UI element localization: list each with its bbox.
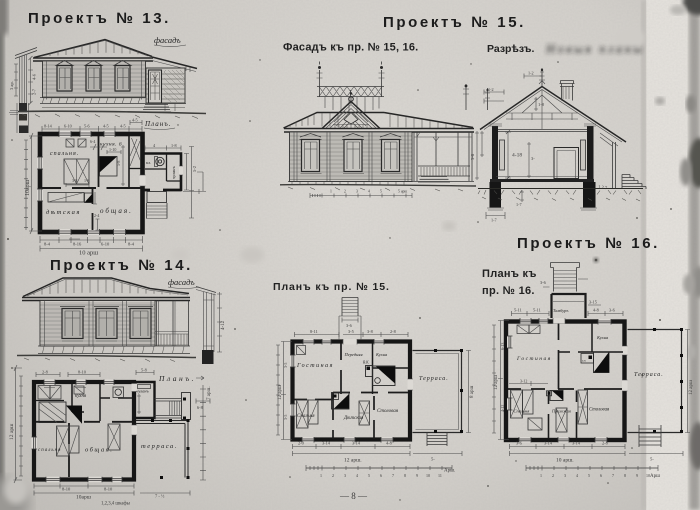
svg-text:Терраса.: Терраса. (634, 372, 664, 378)
svg-text:10арш: 10арш (76, 495, 92, 501)
svg-text:3: 3 (344, 473, 346, 478)
svg-text:7 арш.: 7 арш. (207, 386, 212, 400)
svg-text:5-2: 5-2 (192, 166, 197, 172)
svg-text:— 8 —: — 8 — (339, 491, 368, 501)
svg-text:8-10: 8-10 (104, 487, 113, 492)
svg-text:3: 3 (356, 190, 358, 194)
svg-text:3-14: 3-14 (572, 441, 581, 446)
svg-text:3-8: 3-8 (72, 178, 77, 183)
svg-text:3-5: 3-5 (283, 415, 288, 420)
svg-text:3-15: 3-15 (589, 300, 597, 305)
svg-text:12 арш: 12 арш (689, 380, 694, 395)
svg-text:4-18: 4-18 (512, 153, 522, 159)
svg-text:Разрѣзъ.: Разрѣзъ. (487, 43, 534, 55)
svg-text:1-2: 1-2 (488, 87, 494, 92)
svg-text:5-11: 5-11 (514, 308, 522, 313)
svg-text:8: 8 (404, 473, 406, 478)
svg-text:12 арш.: 12 арш. (344, 458, 362, 464)
svg-text:9: 9 (636, 473, 638, 478)
svg-text:8-4: 8-4 (128, 242, 135, 247)
svg-text:10 арш.: 10 арш. (556, 458, 574, 464)
svg-text:5-8: 5-8 (141, 368, 147, 373)
svg-text:8: 8 (624, 473, 626, 478)
svg-text:4-6: 4-6 (32, 73, 37, 80)
svg-text:3-14: 3-14 (544, 441, 553, 446)
svg-text:Дѣтская: Дѣтская (343, 416, 364, 421)
svg-text:12 арш: 12 арш (494, 375, 499, 390)
svg-text:4-5: 4-5 (120, 124, 126, 129)
svg-text:1-10: 1-10 (109, 147, 116, 152)
svg-text:Проектъ № 13.: Проектъ № 13. (28, 10, 171, 27)
svg-text:фасадъ: фасадъ (168, 277, 195, 287)
svg-text:5 арш: 5 арш (398, 190, 407, 194)
svg-text:Арш.: Арш. (444, 469, 455, 474)
svg-text:Тамбуръ: Тамбуръ (553, 308, 569, 313)
svg-text:8-11: 8-11 (310, 329, 318, 334)
svg-text:Планъ къ пр. № 15.: Планъ къ пр. № 15. (273, 281, 390, 293)
svg-text:Планъ.: Планъ. (144, 120, 172, 128)
svg-text:5-11: 5-11 (533, 308, 541, 313)
svg-text:6-4: 6-4 (90, 139, 95, 144)
svg-text:1-7: 1-7 (491, 218, 497, 223)
svg-text:Проектъ № 15.: Проектъ № 15. (383, 14, 526, 31)
svg-text:4: 4 (576, 473, 578, 478)
svg-text:1,2,3,4 шкафы: 1,2,3,4 шкафы (101, 502, 131, 507)
svg-text:3-14: 3-14 (322, 441, 331, 446)
svg-text:7: 7 (392, 473, 394, 478)
svg-text:Проектъ № 14.: Проектъ № 14. (50, 257, 193, 274)
svg-text:6-10: 6-10 (64, 124, 72, 129)
svg-text:6-13: 6-13 (500, 343, 505, 350)
svg-text:3-12: 3-12 (520, 379, 527, 384)
svg-text:2-8: 2-8 (602, 441, 608, 446)
svg-text:2-8: 2-8 (42, 370, 48, 375)
svg-text:9: 9 (416, 473, 418, 478)
svg-text:пр. № 16.: пр. № 16. (482, 285, 535, 297)
svg-text:спальня: спальня (38, 448, 61, 453)
svg-text:3-8: 3-8 (470, 153, 475, 160)
svg-text:2-8: 2-8 (390, 329, 396, 334)
svg-text:5-: 5- (650, 457, 654, 462)
svg-text:4-12: 4-12 (500, 405, 505, 412)
svg-text:Прихожая: Прихожая (551, 409, 571, 414)
svg-text:5-6: 5-6 (84, 124, 90, 129)
svg-text:2: 2 (332, 473, 334, 478)
svg-text:Спальня: Спальня (297, 414, 315, 419)
svg-text:Спальня: Спальня (514, 409, 530, 414)
svg-text:8 арш: 8 арш (470, 386, 475, 398)
svg-text:8-10: 8-10 (78, 370, 86, 375)
svg-text:3: 3 (564, 473, 566, 478)
svg-text:терраса.: терраса. (141, 443, 178, 450)
svg-text:общая.: общая. (85, 447, 113, 454)
svg-text:12 арш: 12 арш (278, 385, 283, 400)
svg-text:4-5: 4-5 (103, 124, 109, 129)
svg-text:Кухня: Кухня (596, 335, 608, 340)
svg-text:4-8: 4-8 (593, 308, 599, 313)
svg-text:7: 7 (612, 473, 614, 478)
svg-text:10арш: 10арш (25, 179, 31, 196)
svg-text:4: 4 (368, 190, 370, 194)
svg-text:1: 1 (320, 473, 322, 478)
svg-text:8-10: 8-10 (62, 487, 71, 492)
svg-text:12 арш: 12 арш (9, 423, 15, 440)
svg-text:5: 5 (588, 473, 590, 478)
svg-text:2-0: 2-0 (298, 441, 304, 446)
svg-text:2: 2 (552, 473, 554, 478)
svg-text:5: 5 (368, 473, 370, 478)
svg-text:кухня: кухня (75, 394, 87, 399)
svg-text:Столовая: Столовая (377, 409, 399, 414)
svg-text:10 арш: 10 арш (79, 250, 98, 257)
svg-text:3-5: 3-5 (348, 329, 354, 334)
svg-text:4-8: 4-8 (386, 441, 392, 446)
svg-text:1-8: 1-8 (538, 102, 545, 107)
svg-text:Гостиная: Гостиная (516, 356, 552, 362)
svg-text:2: 2 (344, 190, 346, 194)
svg-text:Терраса.: Терраса. (419, 376, 449, 382)
svg-text:спальня.: спальня. (50, 151, 79, 157)
svg-text:Проектъ № 16.: Проектъ № 16. (517, 235, 660, 252)
svg-text:Гостиная: Гостиная (296, 363, 334, 369)
svg-text:общая.: общая. (100, 207, 133, 215)
svg-text:1-8: 1-8 (171, 143, 177, 148)
svg-text:3-: 3- (531, 156, 535, 161)
svg-text:Столовая: Столовая (589, 408, 610, 413)
svg-text:фасадъ: фасадъ (154, 35, 181, 45)
svg-text:6-8: 6-8 (197, 405, 203, 410)
svg-text:11: 11 (438, 473, 442, 478)
svg-text:5-: 5- (431, 457, 435, 462)
svg-text:1-8: 1-8 (84, 178, 89, 183)
svg-text:4: 4 (356, 473, 358, 478)
svg-text:2-7: 2-7 (32, 88, 37, 95)
svg-text:4-5: 4-5 (132, 118, 138, 123)
svg-text:3 ар.: 3 ар. (9, 81, 14, 90)
svg-text:6-10: 6-10 (101, 242, 110, 247)
svg-text:Передняя: Передняя (344, 352, 363, 357)
svg-text:Новыя планы: Новыя планы (545, 42, 644, 56)
svg-text:чуланъ: чуланъ (137, 388, 150, 393)
svg-text:В.К.: В.К. (363, 361, 369, 365)
svg-text:Арш: Арш (650, 474, 660, 479)
svg-text:3-8: 3-8 (367, 329, 373, 334)
svg-text:5: 5 (380, 190, 382, 194)
svg-text:1: 1 (330, 190, 332, 194)
svg-text:чуланъ: чуланъ (171, 165, 176, 179)
svg-text:3-5: 3-5 (283, 363, 288, 368)
svg-text:дѣтская: дѣтская (46, 209, 81, 216)
svg-text:1: 1 (540, 473, 542, 478)
svg-text:Планъ.: Планъ. (158, 374, 196, 383)
svg-text:3-6: 3-6 (516, 441, 523, 446)
svg-text:Фасадъ къ пр. № 15, 16.: Фасадъ къ пр. № 15, 16. (283, 42, 418, 54)
svg-text:3-6: 3-6 (540, 280, 547, 285)
svg-text:6: 6 (380, 473, 382, 478)
svg-text:8-4: 8-4 (44, 242, 51, 247)
svg-text:8-14: 8-14 (44, 124, 53, 129)
svg-text:2-4: 2-4 (94, 213, 99, 218)
svg-text:5-8: 5-8 (116, 161, 121, 166)
svg-text:кл.: кл. (146, 160, 151, 165)
svg-text:8-16: 8-16 (73, 242, 82, 247)
svg-text:1-7: 1-7 (516, 202, 522, 207)
svg-text:1-2: 1-2 (528, 71, 534, 76)
svg-text:7 - ½: 7 - ½ (155, 494, 165, 499)
svg-text:3-6: 3-6 (346, 323, 353, 328)
svg-text:3-14: 3-14 (352, 441, 361, 446)
svg-text:4-12: 4-12 (221, 320, 226, 330)
svg-text:з.к: з.к (581, 359, 586, 363)
svg-text:Планъ къ: Планъ къ (482, 268, 537, 280)
svg-text:10: 10 (426, 473, 430, 478)
svg-text:Кухня: Кухня (375, 352, 387, 357)
svg-text:6: 6 (600, 473, 602, 478)
svg-text:3-6: 3-6 (609, 308, 616, 313)
